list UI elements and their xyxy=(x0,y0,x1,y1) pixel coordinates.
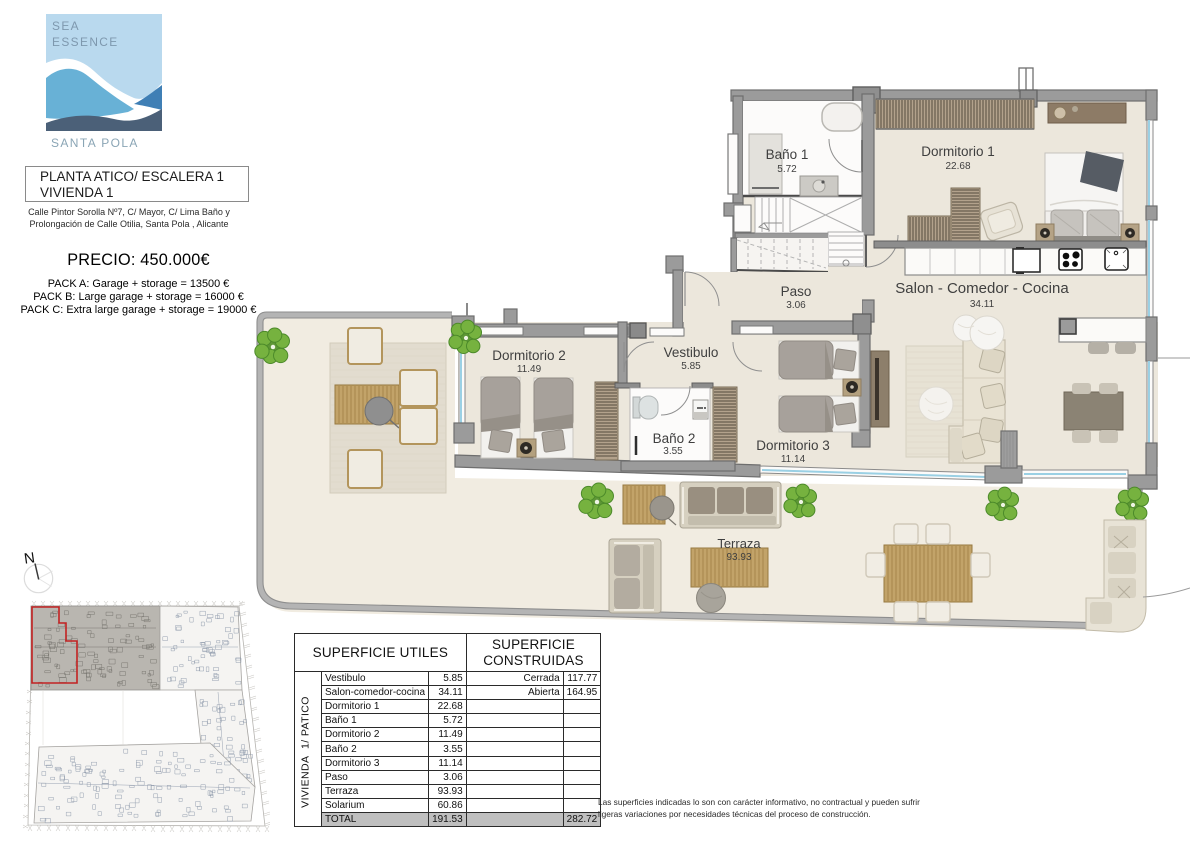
svg-text:34.11: 34.11 xyxy=(970,299,995,310)
svg-text:11.49: 11.49 xyxy=(517,364,542,375)
svg-text:3.06: 3.06 xyxy=(786,300,806,311)
svg-text:Dormitorio 1: Dormitorio 1 xyxy=(921,144,995,159)
svg-text:Salon - Comedor - Cocina: Salon - Comedor - Cocina xyxy=(895,280,1069,297)
svg-text:22.68: 22.68 xyxy=(945,161,970,172)
svg-text:3.55: 3.55 xyxy=(663,446,683,457)
svg-text:93.93: 93.93 xyxy=(726,552,751,563)
svg-text:5.85: 5.85 xyxy=(681,361,701,372)
svg-text:N: N xyxy=(23,549,36,567)
svg-text:Paso: Paso xyxy=(781,284,812,299)
svg-text:Dormitorio 3: Dormitorio 3 xyxy=(756,438,830,453)
svg-text:11.14: 11.14 xyxy=(781,454,806,465)
svg-text:Baño 1: Baño 1 xyxy=(766,147,809,162)
svg-text:Baño 2: Baño 2 xyxy=(653,431,696,446)
svg-text:Dormitorio 2: Dormitorio 2 xyxy=(492,348,566,363)
svg-text:5.72: 5.72 xyxy=(777,164,797,175)
svg-text:Vestibulo: Vestibulo xyxy=(664,345,719,360)
svg-text:Terraza: Terraza xyxy=(717,536,761,551)
